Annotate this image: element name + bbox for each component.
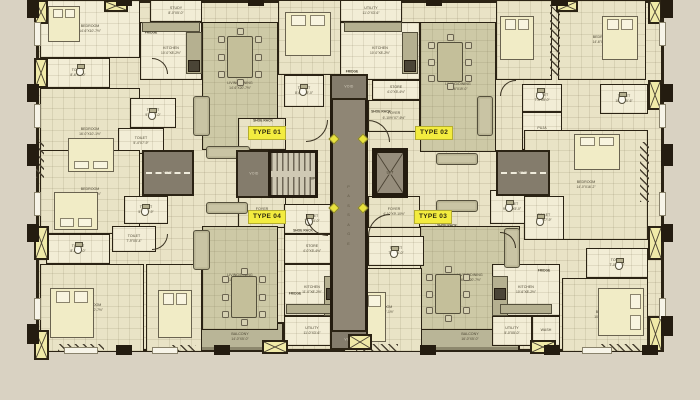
structural-column — [27, 84, 39, 102]
toilet-fixture — [536, 216, 544, 226]
pillow — [56, 291, 70, 303]
pillow — [505, 19, 516, 30]
room-label: BEDROOM14'-6"X10'-7½" — [79, 25, 101, 34]
chair — [447, 83, 454, 90]
pillow — [78, 218, 92, 227]
dining-table — [218, 28, 262, 86]
room-label: KITCHEN10'-0"X8'-2½" — [370, 47, 390, 56]
room-utility: UTILITY11'-0"X3'-6" — [340, 0, 402, 22]
structural-column — [544, 345, 560, 355]
pillow — [630, 315, 641, 331]
window — [64, 347, 98, 354]
wardrobe-hatch — [640, 142, 649, 202]
kitchen-counter — [500, 304, 552, 314]
void-label: VOID — [344, 85, 353, 88]
structural-column — [214, 345, 230, 355]
chair — [222, 311, 229, 318]
structural-column — [27, 324, 39, 344]
room-store: STORE4'-0"X5'-4½" — [372, 80, 420, 100]
chair — [222, 294, 229, 301]
toilet-fixture — [74, 244, 82, 254]
sofa — [206, 202, 248, 214]
window — [659, 22, 666, 46]
room-label: WASH — [541, 329, 552, 334]
lift-shaft: LIFT — [372, 148, 408, 198]
room-label: UTILITY5'-0"X5'-0" — [504, 327, 519, 336]
bed — [574, 134, 620, 170]
structural-column — [116, 0, 132, 6]
pillow — [65, 9, 75, 18]
bed — [48, 6, 80, 42]
table-top — [227, 36, 253, 78]
kitchen-counter — [344, 22, 402, 32]
bed — [598, 288, 644, 336]
window — [34, 192, 41, 216]
room-label: BEDROOM16'-0"X10'-1½" — [79, 128, 101, 137]
stair-flight — [271, 153, 315, 171]
room-label: KITCHEN10'-0"X8'-2½" — [161, 47, 181, 56]
toilet-fixture — [299, 86, 307, 96]
chair — [241, 268, 248, 275]
toilet-fixture — [141, 206, 149, 216]
duct-cross-box — [262, 340, 288, 354]
structural-column — [661, 84, 673, 102]
window — [659, 192, 666, 216]
void-shaft: VOID — [236, 150, 272, 198]
chair — [237, 79, 244, 86]
chair — [218, 54, 225, 61]
tag-fridge: FRIDGE — [289, 292, 301, 295]
structural-column — [661, 224, 673, 242]
structural-column — [642, 345, 658, 355]
stove — [404, 60, 416, 72]
structural-column — [661, 316, 673, 336]
room-label: TOILET5'-4"X7'-9" — [133, 137, 148, 146]
void-shaft: VOID — [496, 150, 550, 196]
void-label: VOID — [163, 171, 172, 174]
tag-shoe-rack: SHOE RACK — [293, 229, 313, 232]
structural-column — [661, 144, 673, 166]
dining-table — [222, 268, 266, 326]
pillow — [60, 218, 74, 227]
void-label: VOID — [518, 171, 527, 174]
pillow — [53, 9, 63, 18]
toilet-fixture — [505, 202, 513, 212]
pillow — [368, 295, 380, 307]
toilet-fixture — [615, 260, 623, 270]
pillow — [621, 19, 633, 30]
window — [582, 347, 612, 354]
void-shaft: VOID — [330, 74, 368, 100]
room-label: UTILITY11'-0"X3'-6" — [363, 7, 380, 16]
chair — [465, 42, 472, 49]
window — [34, 298, 41, 320]
sofa — [193, 96, 210, 136]
unit-type-label-type-04: TYPE 04 — [248, 210, 286, 224]
structural-column — [27, 0, 39, 18]
bed — [500, 16, 534, 60]
tag-shoe-rack: SHOE RACK — [437, 224, 457, 227]
chair — [428, 42, 435, 49]
duct-cross-box — [648, 0, 662, 24]
wardrobe-hatch — [550, 4, 560, 76]
pillow — [630, 294, 641, 310]
chair — [218, 36, 225, 43]
pillow — [74, 161, 89, 169]
room-label: KITCHEN10'-6"X8'-2½" — [516, 286, 536, 295]
void-shaft: VOID — [142, 150, 194, 196]
room-utility: UTILITY5'-0"X5'-0" — [492, 316, 532, 346]
window — [659, 104, 666, 128]
room-label: BALCONY14'-0"X5'-0" — [231, 333, 248, 342]
chair — [237, 28, 244, 35]
pillow — [93, 161, 108, 169]
chair — [465, 75, 472, 82]
room-study: STUDY8'-0"X5'-0" — [150, 0, 202, 22]
toilet-fixture — [618, 94, 626, 104]
dining-table — [428, 34, 472, 90]
chair — [255, 54, 262, 61]
room-label: STORE4'-0"X5'-4½" — [303, 245, 321, 254]
toilet-fixture — [536, 90, 544, 100]
unit-type-label-type-03: TYPE 03 — [414, 210, 452, 224]
structural-column — [552, 0, 568, 6]
bed — [285, 12, 331, 56]
tag-fridge: FRIDGE — [538, 269, 550, 272]
table-top — [231, 276, 257, 318]
chair — [426, 274, 433, 281]
toilet-fixture — [148, 110, 156, 120]
unit-type-label-type-02: TYPE 02 — [415, 126, 453, 140]
pillow — [599, 137, 614, 146]
chair — [445, 315, 452, 322]
chair — [241, 319, 248, 326]
stair-flight — [271, 177, 315, 195]
tag-up: UP — [311, 177, 316, 180]
table-top — [437, 42, 463, 82]
room-toilet: TOILET7'-9"X5'-4" — [112, 226, 156, 252]
stove — [188, 60, 200, 72]
duct-cross-box — [348, 334, 372, 350]
room-label: BEDROOM14'-0"X16'-2" — [576, 181, 595, 190]
structural-column — [420, 345, 436, 355]
chair — [426, 307, 433, 314]
room-label: TOILET7'-9"X5'-4" — [126, 235, 141, 244]
pillow — [176, 293, 187, 305]
pillow — [291, 15, 306, 26]
pillow — [74, 291, 88, 303]
structural-column — [27, 144, 39, 166]
window — [152, 347, 178, 354]
unit-type-label-type-01: TYPE 01 — [248, 126, 286, 140]
room-label: BALCONY16'-0"X5'-0" — [461, 333, 478, 342]
chair — [428, 59, 435, 66]
chair — [255, 71, 262, 78]
chair — [463, 307, 470, 314]
chair — [426, 291, 433, 298]
bed — [54, 192, 98, 230]
structural-column — [27, 224, 39, 242]
window — [34, 22, 41, 46]
chair — [222, 276, 229, 283]
chair — [255, 36, 262, 43]
chair — [218, 71, 225, 78]
chair — [463, 274, 470, 281]
room-label: STUDY8'-0"X5'-0" — [168, 7, 183, 16]
bed — [50, 288, 94, 338]
structural-column — [116, 345, 132, 355]
structural-column — [426, 0, 442, 6]
sofa — [193, 230, 210, 270]
pillow — [580, 137, 595, 146]
bed — [68, 138, 114, 172]
floor-plan: BALCONY14'-0"X5'-0"BALCONY16'-0"X5'-0"BE… — [0, 0, 700, 400]
bed — [158, 290, 192, 338]
room-label: UTILITY11'-0"X3'-6" — [304, 327, 321, 336]
room-label: KITCHEN11'-0"X8'-2½" — [302, 286, 322, 295]
void-label: VOID — [249, 172, 258, 175]
tag-fridge: FRIDGE — [145, 31, 157, 34]
chair — [445, 266, 452, 273]
stove — [494, 288, 506, 300]
chair — [463, 291, 470, 298]
window — [34, 104, 41, 128]
toilet-fixture — [390, 248, 398, 258]
bed — [602, 16, 638, 60]
structural-column — [661, 0, 673, 18]
tag-shoe-rack: SHOE RACK — [371, 110, 391, 113]
pillow — [310, 15, 325, 26]
pillow — [163, 293, 174, 305]
tag-fridge: FRIDGE — [346, 70, 358, 73]
table-top — [435, 274, 461, 314]
dining-table — [426, 266, 470, 322]
structural-column — [248, 0, 264, 6]
chair — [259, 276, 266, 283]
sofa — [477, 96, 493, 136]
tag-shoe-rack: SHOE RACK — [253, 119, 273, 122]
staircase — [268, 150, 318, 198]
toilet-fixture — [76, 66, 84, 76]
chair — [259, 311, 266, 318]
lift-label: LIFT — [386, 171, 394, 174]
room-label: STORE4'-0"X5'-4½" — [387, 86, 405, 95]
pillow — [518, 19, 529, 30]
chair — [428, 75, 435, 82]
sofa — [436, 153, 478, 165]
chair — [447, 34, 454, 41]
chair — [259, 294, 266, 301]
pillow — [607, 19, 619, 30]
chair — [465, 59, 472, 66]
